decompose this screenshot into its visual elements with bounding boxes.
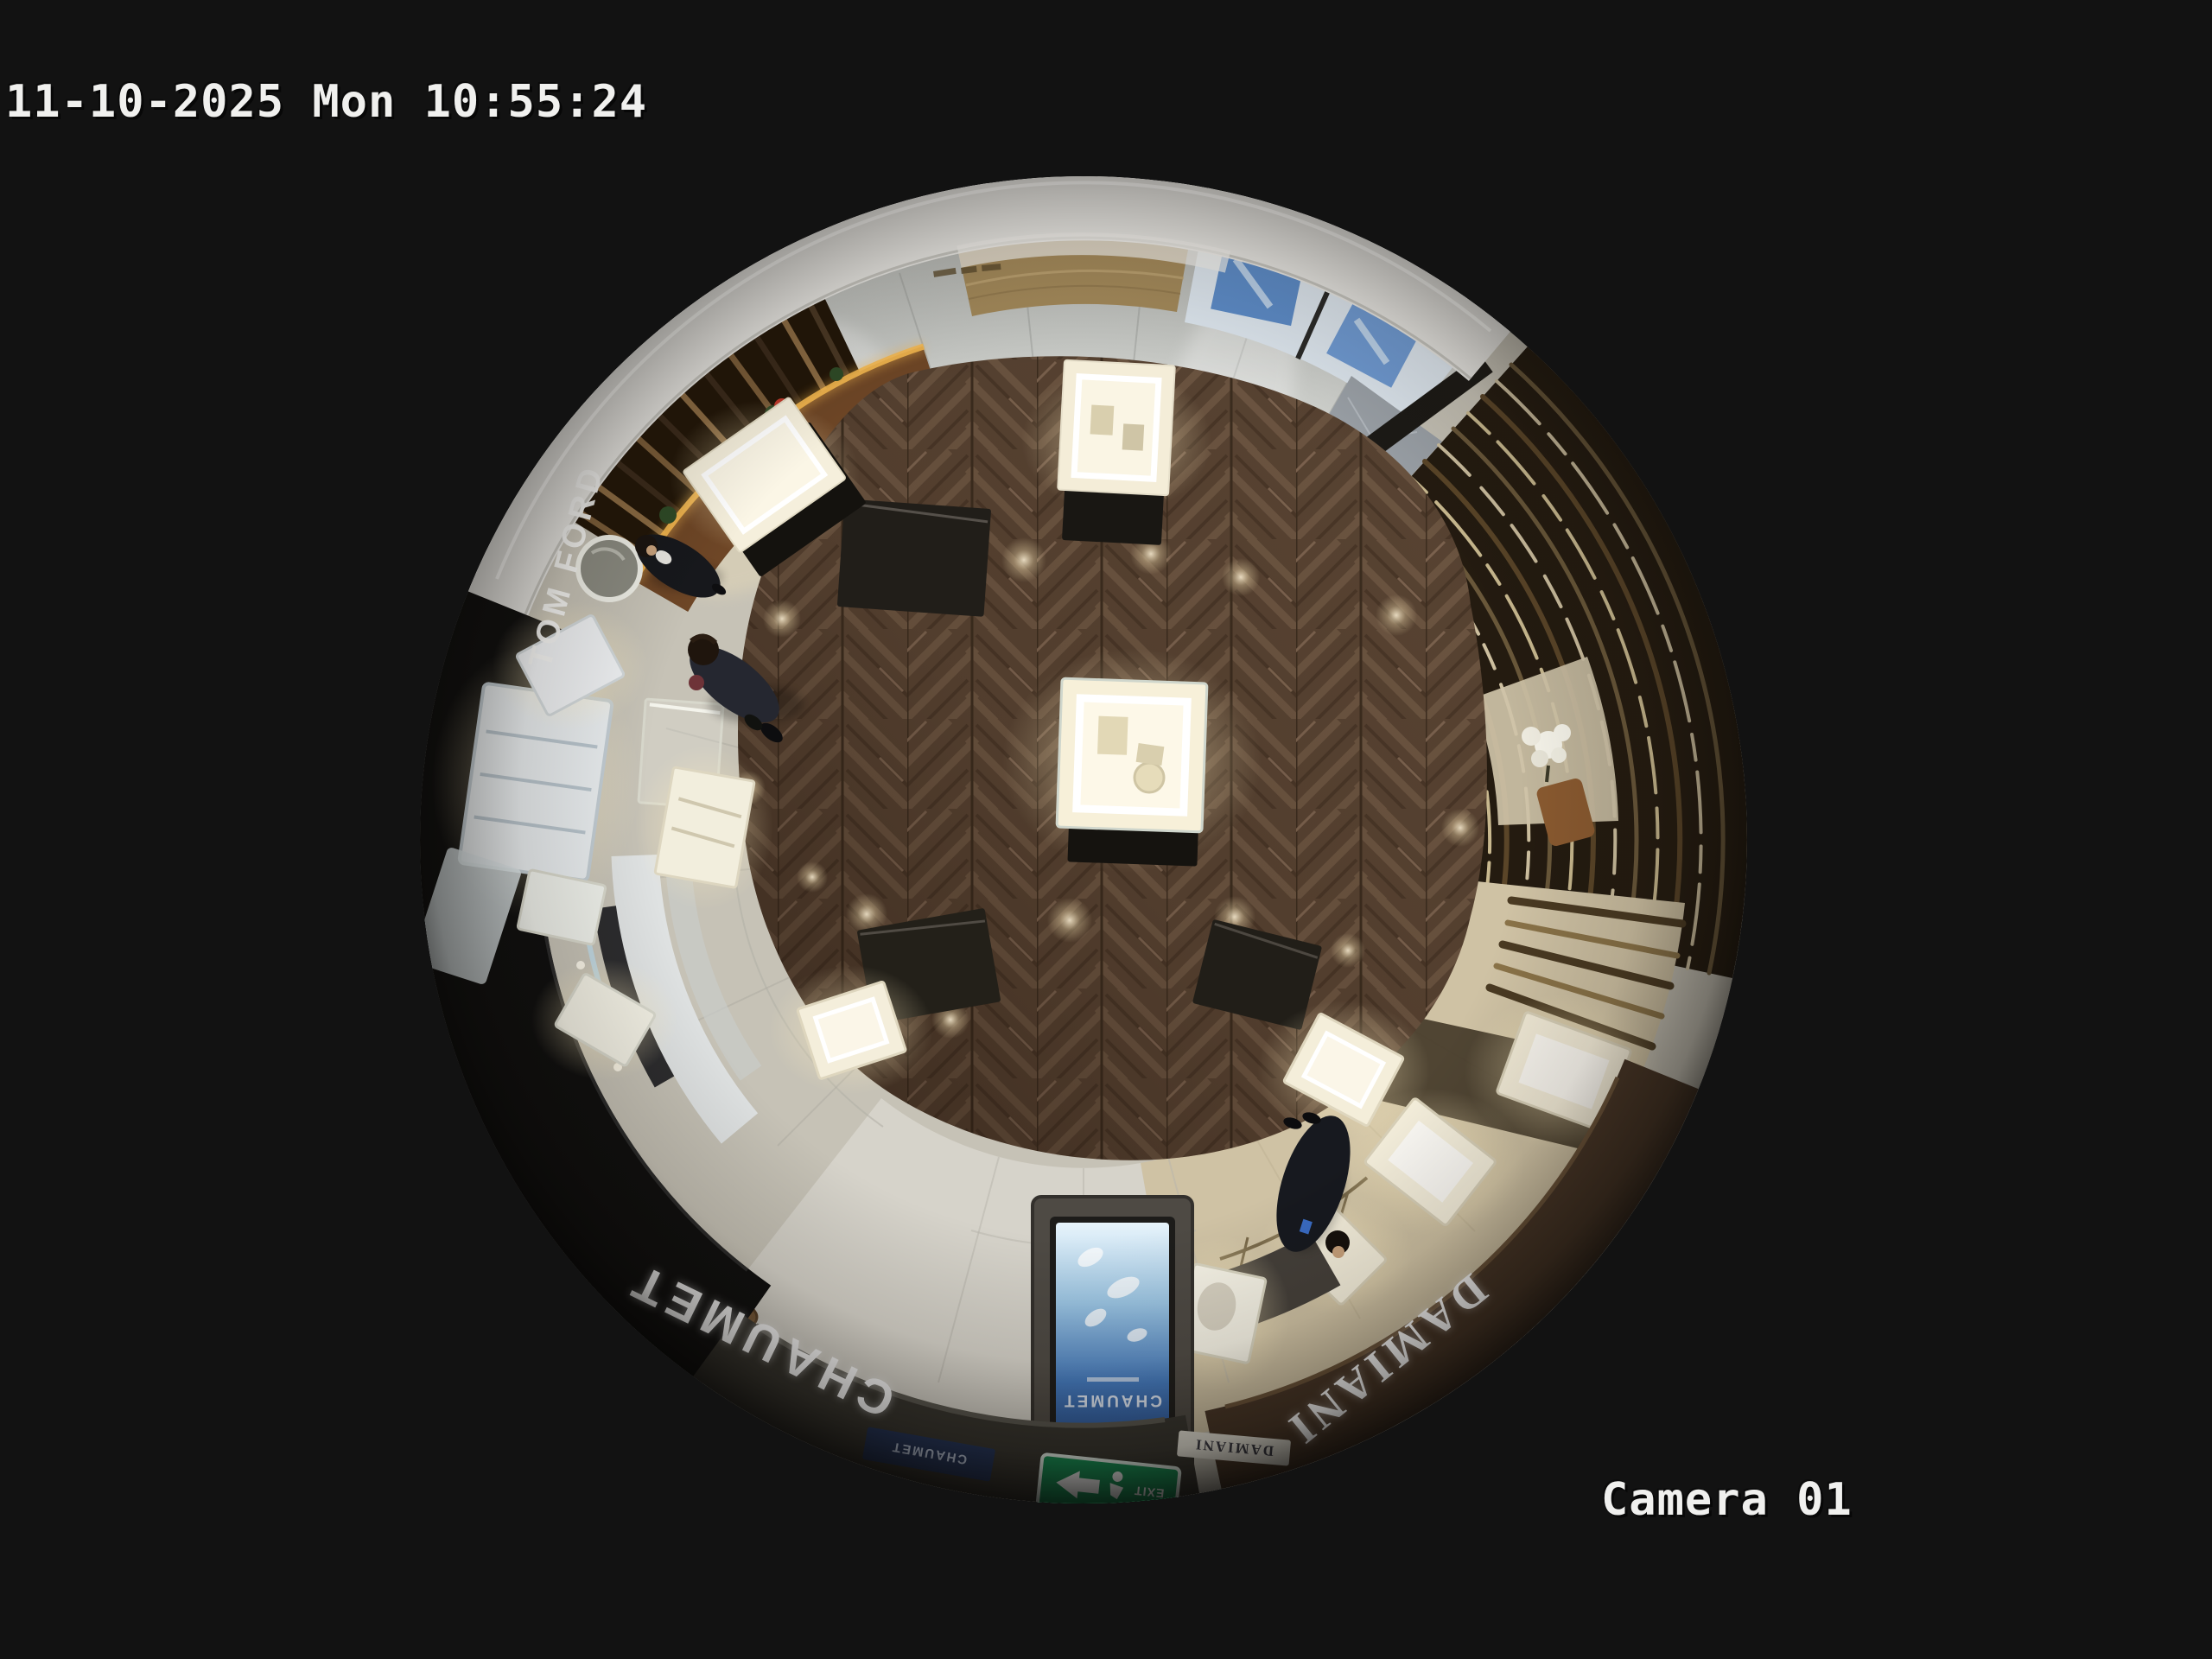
osd-timestamp: 11-10-2025 Mon 10:55:24 xyxy=(5,76,647,128)
fisheye-scene: CHAUMET xyxy=(411,176,1747,1522)
cctv-frame: CHAUMET xyxy=(0,0,2212,1659)
camera-feed: CHAUMET xyxy=(0,0,2212,1659)
lens-vignette xyxy=(420,176,1747,1503)
osd-camera-label: Camera 01 xyxy=(1601,1474,1853,1526)
